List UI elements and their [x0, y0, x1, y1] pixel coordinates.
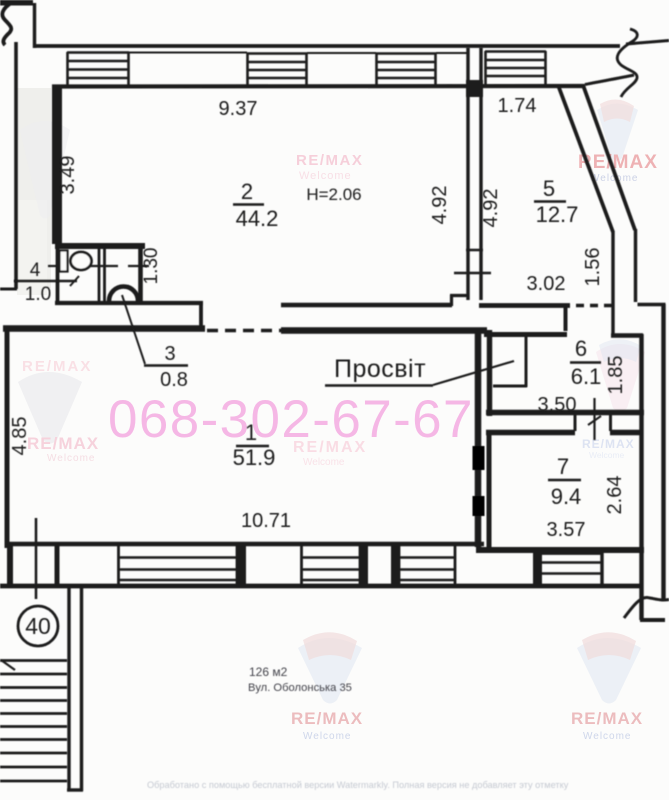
svg-text:RE/MAX: RE/MAX [571, 709, 643, 728]
svg-text:4: 4 [30, 260, 41, 281]
svg-text:40: 40 [25, 613, 51, 639]
svg-text:0.8: 0.8 [160, 369, 188, 391]
svg-text:5: 5 [543, 176, 555, 201]
svg-text:RE/MAX: RE/MAX [22, 358, 92, 375]
svg-text:Welcome: Welcome [299, 170, 352, 182]
svg-text:Welcome: Welcome [303, 457, 345, 468]
svg-text:3.50: 3.50 [538, 394, 577, 416]
svg-text:4.92: 4.92 [429, 186, 451, 225]
svg-text:RE/MAX: RE/MAX [291, 709, 363, 728]
svg-text:6: 6 [575, 336, 587, 361]
svg-text:Welcome: Welcome [583, 731, 632, 742]
svg-text:1.0: 1.0 [25, 284, 51, 305]
svg-text:1.85: 1.85 [605, 356, 627, 395]
svg-text:4.92: 4.92 [480, 189, 502, 228]
svg-text:3.57: 3.57 [547, 519, 586, 541]
svg-text:1.74: 1.74 [498, 95, 537, 117]
svg-text:Welcome: Welcome [47, 453, 96, 464]
svg-text:Обработано с помощью бесплатно: Обработано с помощью бесплатной версии W… [147, 780, 569, 790]
svg-text:RE/MAX: RE/MAX [582, 437, 635, 451]
svg-text:12.7: 12.7 [536, 202, 579, 227]
svg-text:RE/MAX: RE/MAX [27, 434, 99, 453]
svg-text:9.4: 9.4 [551, 484, 582, 509]
svg-text:RE/MAX: RE/MAX [296, 152, 363, 169]
svg-text:1.56: 1.56 [582, 248, 604, 287]
svg-text:4.85: 4.85 [9, 417, 31, 456]
svg-text:Welcome: Welcome [303, 731, 352, 742]
svg-text:1.30: 1.30 [141, 248, 162, 285]
svg-text:3.02: 3.02 [527, 273, 566, 295]
svg-text:RE/MAX: RE/MAX [293, 439, 367, 456]
svg-text:9.37: 9.37 [219, 98, 258, 120]
svg-text:2: 2 [241, 179, 253, 204]
svg-text:6.1: 6.1 [571, 364, 602, 389]
svg-text:068-302-67-67: 068-302-67-67 [108, 390, 474, 449]
svg-text:3: 3 [164, 343, 175, 365]
svg-text:10.71: 10.71 [241, 510, 291, 532]
svg-text:7: 7 [557, 454, 569, 479]
svg-text:Просвіт: Просвіт [334, 355, 426, 383]
svg-text:1: 1 [245, 420, 257, 445]
svg-text:2.64: 2.64 [604, 476, 626, 515]
svg-text:Вул. Оболонська 35: Вул. Оболонська 35 [248, 682, 352, 694]
svg-text:3.49: 3.49 [57, 156, 79, 195]
svg-text:51.9: 51.9 [233, 445, 276, 470]
svg-text:Welcome: Welcome [589, 450, 625, 460]
svg-text:Н=2.06: Н=2.06 [306, 185, 361, 204]
svg-text:44.2: 44.2 [236, 206, 279, 231]
svg-text:126 м2: 126 м2 [249, 665, 288, 679]
